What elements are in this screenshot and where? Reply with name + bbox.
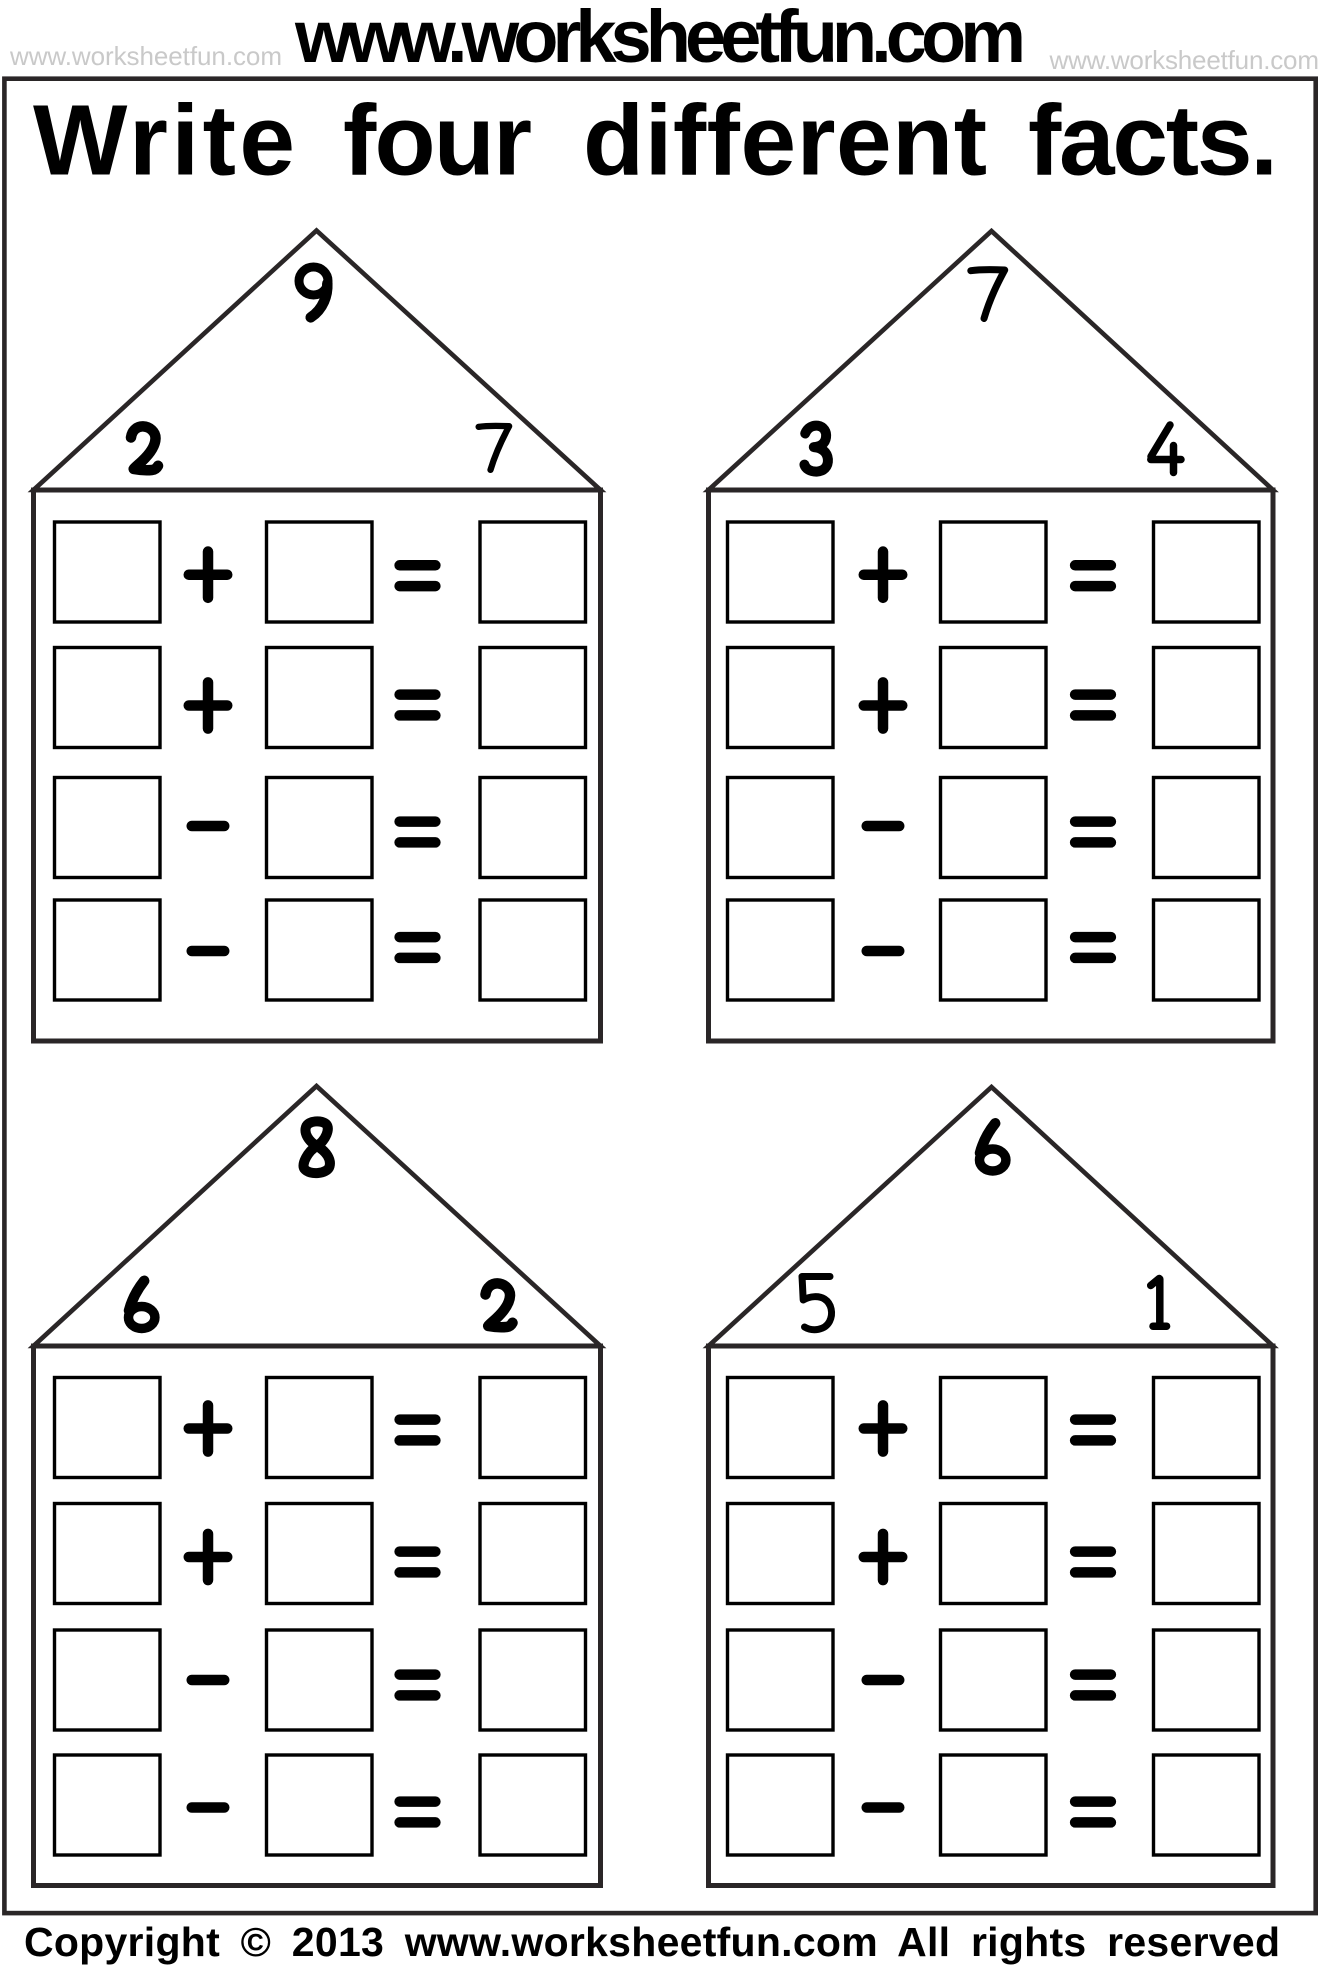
svg-text:www.worksheetfun.com: www.worksheetfun.com — [1049, 45, 1320, 75]
svg-text:www.worksheetfun.com: www.worksheetfun.com — [294, 0, 1026, 78]
svg-text:www.worksheetfun.com: www.worksheetfun.com — [9, 41, 282, 71]
svg-text:Writefourdifferentfacts.: Writefourdifferentfacts. — [33, 85, 1278, 197]
svg-text:Copyright © 2013 www.worksheet: Copyright © 2013 www.worksheetfun.com Al… — [24, 1919, 1280, 1965]
